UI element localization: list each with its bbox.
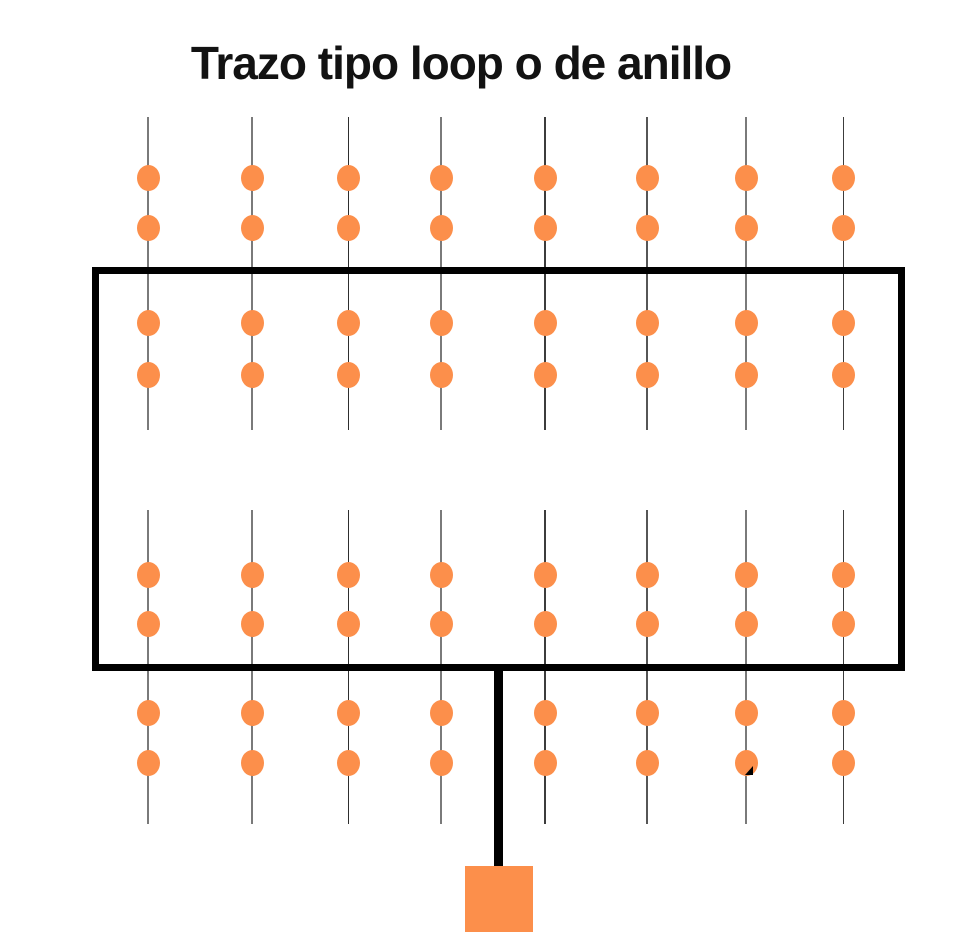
emitter-dot: [534, 362, 557, 388]
emitter-dot: [241, 562, 264, 588]
emitter-dot: [241, 700, 264, 726]
emitter-dot: [137, 611, 160, 637]
emitter-dot: [534, 700, 557, 726]
emitter-dot: [241, 165, 264, 191]
diagram-canvas: Trazo tipo loop o de anillo: [0, 0, 976, 950]
emitter-dot: [241, 215, 264, 241]
diagram-layer: [0, 0, 976, 950]
emitter-dot: [735, 562, 758, 588]
emitter-dot: [832, 700, 855, 726]
emitter-dot: [430, 362, 453, 388]
emitter-dot: [735, 611, 758, 637]
emitter-dot: [430, 700, 453, 726]
emitter-dot: [241, 310, 264, 336]
supply-pipe: [494, 664, 503, 867]
emitter-dot: [137, 310, 160, 336]
emitter-dot: [337, 611, 360, 637]
emitter-dot: [636, 700, 659, 726]
emitter-dot: [636, 362, 659, 388]
emitter-dot: [534, 611, 557, 637]
emitter-dot: [832, 215, 855, 241]
emitter-dot: [137, 165, 160, 191]
emitter-dot: [534, 750, 557, 776]
emitter-dot: [636, 562, 659, 588]
loop-manifold-rect: [92, 267, 905, 671]
emitter-dot: [735, 700, 758, 726]
emitter-dot: [735, 215, 758, 241]
emitter-dot: [735, 165, 758, 191]
emitter-dot: [241, 750, 264, 776]
emitter-dot: [337, 362, 360, 388]
emitter-dot: [137, 562, 160, 588]
emitter-dot: [534, 215, 557, 241]
emitter-dot: [430, 165, 453, 191]
emitter-dot: [137, 700, 160, 726]
emitter-dot: [832, 611, 855, 637]
emitter-dot: [636, 165, 659, 191]
emitter-dot: [430, 750, 453, 776]
emitter-dot: [430, 215, 453, 241]
emitter-dot: [534, 562, 557, 588]
emitter-dot: [241, 611, 264, 637]
emitter-dot: [832, 310, 855, 336]
emitter-dot: [636, 750, 659, 776]
emitter-dot: [534, 165, 557, 191]
emitter-dot: [832, 165, 855, 191]
emitter-dot: [241, 362, 264, 388]
emitter-dot: [337, 215, 360, 241]
emitter-dot: [337, 700, 360, 726]
emitter-dot: [735, 750, 758, 776]
emitter-dot: [832, 562, 855, 588]
emitter-dot: [832, 750, 855, 776]
emitter-dot: [430, 611, 453, 637]
emitter-dot: [137, 362, 160, 388]
emitter-dot: [636, 310, 659, 336]
emitter-dot: [337, 562, 360, 588]
emitter-dot: [832, 362, 855, 388]
emitter-dot: [430, 310, 453, 336]
emitter-dot: [636, 611, 659, 637]
emitter-dot: [337, 165, 360, 191]
emitter-dot: [137, 750, 160, 776]
emitter-dot: [534, 310, 557, 336]
water-source-square: [465, 866, 533, 932]
emitter-dot: [735, 362, 758, 388]
emitter-dot: [430, 562, 453, 588]
emitter-dot: [137, 215, 160, 241]
emitter-dot: [337, 750, 360, 776]
emitter-dot: [636, 215, 659, 241]
emitter-dot: [337, 310, 360, 336]
emitter-dot: [735, 310, 758, 336]
